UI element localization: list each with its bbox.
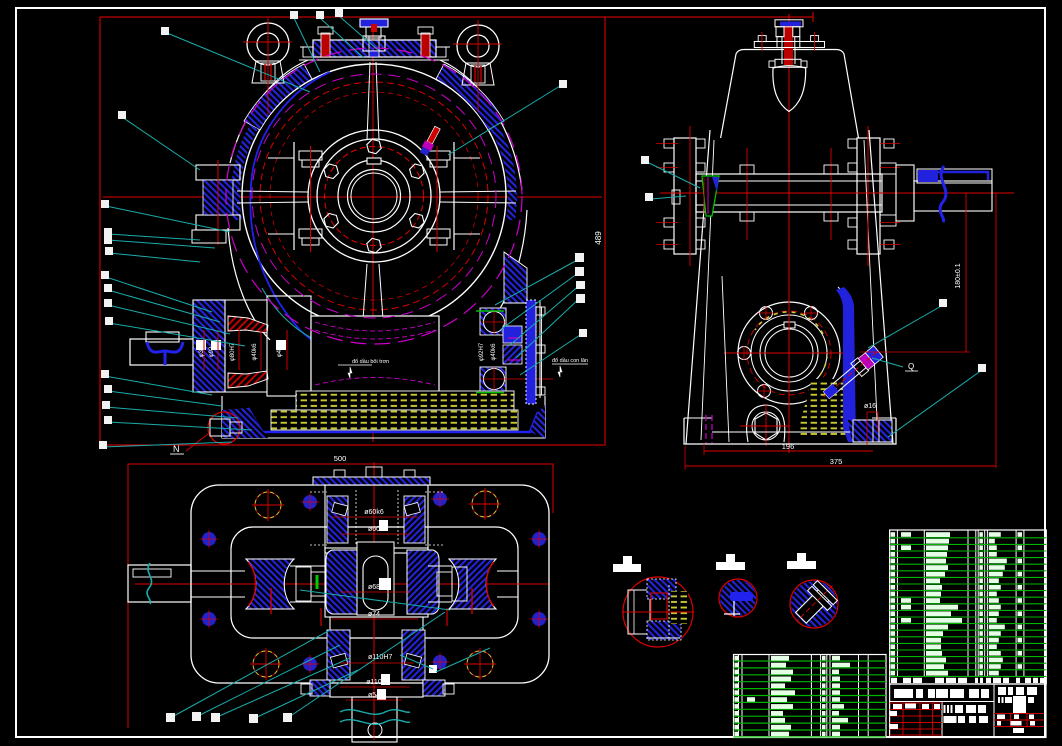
svg-text:180±0.1: 180±0.1	[955, 263, 962, 288]
svg-text:375: 375	[830, 457, 843, 466]
svg-text:489: 489	[594, 231, 603, 245]
svg-text:ø60k6: ø60k6	[364, 509, 384, 516]
svg-text:φ30: φ30	[199, 346, 205, 357]
svg-text:φ45: φ45	[277, 346, 283, 357]
svg-text:đổ dầu bôi trơn: đổ dầu bôi trơn	[352, 358, 389, 365]
svg-text:φ80H7: φ80H7	[230, 342, 236, 361]
svg-text:φ40k6: φ40k6	[491, 343, 497, 361]
svg-text:N: N	[173, 444, 180, 454]
svg-text:Q: Q	[908, 362, 914, 371]
svg-text:ø110: ø110	[366, 679, 382, 686]
svg-text:đổ dầu con lăn: đổ dầu con lăn	[552, 357, 588, 364]
svg-text:ø16: ø16	[864, 403, 876, 410]
svg-text:φ40k6: φ40k6	[252, 343, 258, 361]
svg-text:φ92H7: φ92H7	[479, 342, 485, 361]
svg-text:ø60: ø60	[368, 526, 380, 533]
svg-text:196: 196	[782, 442, 795, 451]
svg-text:ø68: ø68	[368, 584, 380, 591]
svg-text:φ92: φ92	[209, 346, 215, 357]
svg-text:500: 500	[334, 454, 347, 463]
